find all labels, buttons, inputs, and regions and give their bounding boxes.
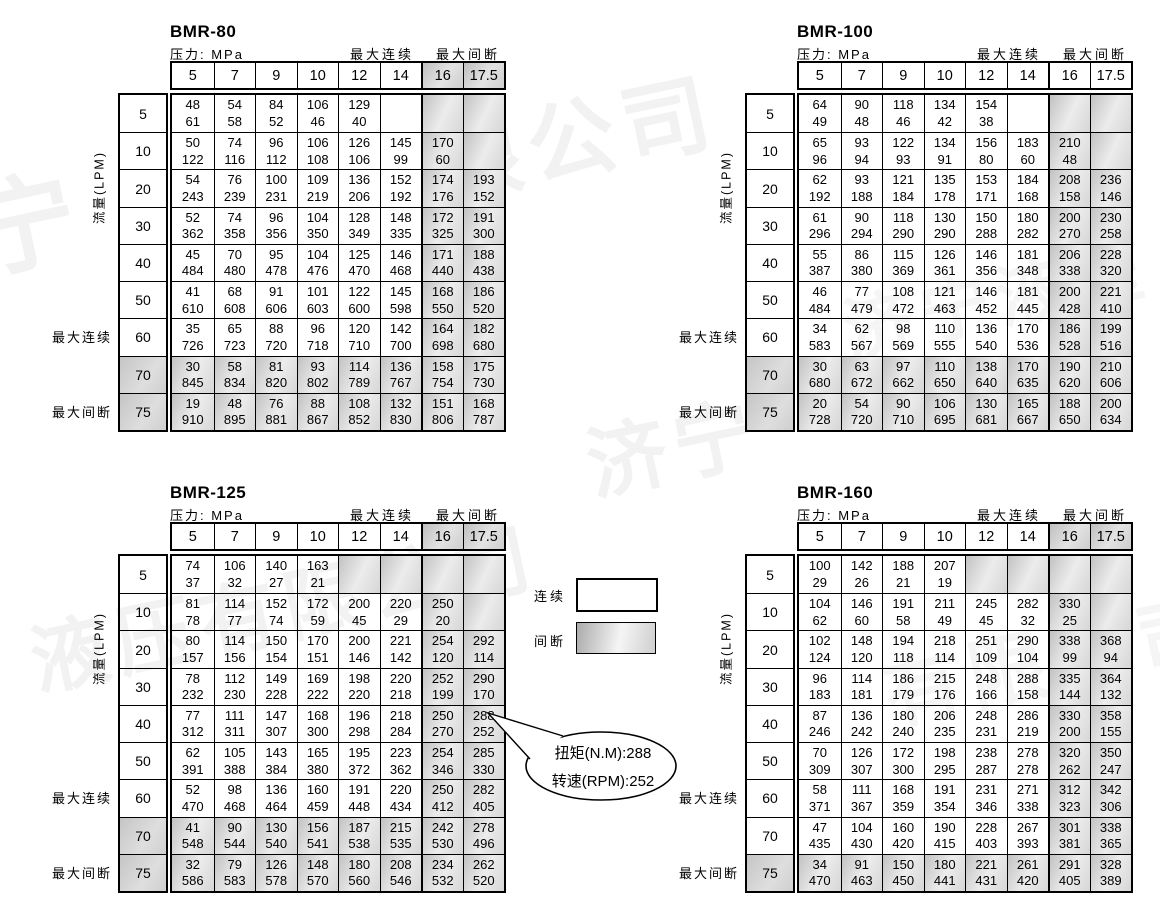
data-cell: 96718 [297,318,339,355]
torque-value: 70 [215,247,256,264]
data-cell: 160459 [297,779,339,816]
torque-value: 194 [883,633,924,650]
data-cell: 151806 [421,393,463,430]
data-grid: 6449904811846134421543865969394122931349… [797,93,1133,432]
data-cell: 112230 [214,668,256,705]
data-cell: 13442 [924,95,966,132]
data-cell: 20728 [799,393,841,430]
data-cell: 145598 [380,281,422,318]
flow-row-label: 40 [120,244,166,281]
flow-row-label: 50 [120,281,166,318]
speed-value: 206 [339,189,380,206]
side-row-label: 最大连续 [6,788,112,807]
speed-value: 262 [1050,762,1090,779]
speed-value: 306 [1091,799,1132,816]
data-cell: 10646 [297,95,339,132]
speed-value: 350 [298,226,339,243]
speed-value: 323 [1050,799,1090,816]
data-cell: 68608 [214,281,256,318]
pressure-header-cell: 16 [1048,524,1090,549]
data-cell: 10029 [799,556,841,593]
torque-value: 254 [423,745,463,762]
speed-value: 109 [966,650,1007,667]
speed-value: 120 [842,650,883,667]
torque-value: 153 [966,172,1007,189]
data-cell: 146468 [380,244,422,281]
torque-value: 215 [925,671,966,688]
data-cell: 206338 [1048,244,1090,281]
torque-value: 342 [1091,782,1132,799]
speed-value: 338 [1008,799,1049,816]
data-cell: 242530 [421,817,463,854]
torque-value: 54 [842,396,883,413]
data-cell: 150450 [882,854,924,891]
torque-value: 96 [799,671,841,688]
torque-value: 76 [215,172,256,189]
data-cell: 15680 [965,132,1007,169]
data-cell: 230258 [1090,207,1132,244]
data-cell: 108852 [338,393,380,430]
torque-value: 245 [966,596,1007,613]
speed-value: 598 [381,301,422,318]
data-cell: 169222 [297,668,339,705]
speed-value: 112 [256,152,297,169]
torque-value: 147 [256,708,297,725]
torque-value: 106 [215,558,256,575]
torque-value: 19 [172,396,214,413]
data-cell: 102124 [799,630,841,667]
torque-value: 58 [215,359,256,376]
torque-value: 282 [1008,596,1049,613]
data-cell: 215176 [924,668,966,705]
speed-value: 583 [215,873,256,890]
data-cell: 125470 [338,244,380,281]
pressure-header-cell: 7 [841,63,883,88]
speed-value: 667 [1008,412,1049,429]
speed-value: 49 [799,114,841,131]
flow-row-label: 30 [120,668,166,705]
data-cell: 62567 [841,318,883,355]
torque-value: 154 [966,97,1007,114]
data-cell: 76239 [214,169,256,206]
torque-value: 262 [464,857,505,874]
torque-value: 122 [883,135,924,152]
torque-value: 291 [1050,857,1090,874]
data-cell: 34583 [799,318,841,355]
data-cell: 65723 [214,318,256,355]
speed-value: 158 [1050,189,1090,206]
torque-value: 290 [1008,633,1049,650]
data-cell: 136464 [255,779,297,816]
torque-value: 198 [339,671,380,688]
pressure-header-cell: 10 [924,524,966,549]
speed-value: 789 [339,375,380,392]
data-cell: 208158 [1048,169,1090,206]
speed-value: 606 [256,301,297,318]
flow-row-label-column: 51020304050607075 [118,93,168,432]
torque-value: 145 [381,135,422,152]
pressure-header-cell: 16 [421,524,463,549]
speed-value: 834 [215,375,256,392]
data-cell: 96112 [255,132,297,169]
torque-value: 198 [925,745,966,762]
torque-value: 118 [883,210,924,227]
speed-value: 767 [381,375,422,392]
watermark-text: 宁 [0,130,96,301]
data-cell: 17259 [297,593,339,630]
side-row-label: 最大间断 [633,863,739,882]
speed-value: 532 [423,873,463,890]
torque-value: 81 [172,596,214,613]
speed-value: 516 [1091,338,1132,355]
speed-value: 311 [215,724,256,741]
data-cell: 132830 [380,393,422,430]
data-cell: 267393 [1007,817,1049,854]
torque-value: 267 [1008,820,1049,837]
torque-value: 364 [1091,671,1132,688]
torque-value: 120 [339,321,380,338]
pressure-header-cell: 5 [799,63,841,88]
torque-value: 168 [298,708,339,725]
torque-value: 368 [1091,633,1132,650]
data-cell: 18821 [882,556,924,593]
data-cell: 98569 [882,318,924,355]
pressure-header-cell: 12 [338,63,380,88]
torque-value: 165 [1008,396,1049,413]
torque-value: 84 [256,97,297,114]
speed-value: 403 [966,836,1007,853]
speed-value: 728 [799,412,841,429]
data-cell: 79583 [214,854,256,891]
speed-value: 680 [464,338,505,355]
torque-value: 248 [966,671,1007,688]
pressure-header-cell: 5 [172,524,214,549]
speed-value: 359 [883,799,924,816]
torque-value: 208 [381,857,422,874]
speed-value: 320 [1091,263,1132,280]
torque-value: 90 [842,210,883,227]
header-label-row: 压力: MPa 最大连续 最大间断 [170,44,502,59]
speed-value: 122 [172,152,214,169]
torque-value: 106 [298,135,339,152]
speed-value: 536 [1008,338,1049,355]
data-cell: 22029 [380,593,422,630]
torque-value: 301 [1050,820,1090,837]
torque-value: 218 [381,708,422,725]
torque-value: 136 [842,708,883,725]
speed-value: 146 [1091,189,1132,206]
flow-row-label: 30 [120,207,166,244]
torque-value: 126 [339,135,380,152]
data-cell: 186520 [463,281,505,318]
speed-value: 695 [925,412,966,429]
data-cell: 170151 [297,630,339,667]
torque-value: 146 [381,247,422,264]
speed-value: 546 [381,873,422,890]
speed-value: 802 [298,375,339,392]
torque-value: 65 [799,135,841,152]
flow-row-label: 40 [120,705,166,742]
torque-value: 320 [1050,745,1090,762]
speed-value: 710 [883,412,924,429]
torque-value: 183 [1008,135,1049,152]
data-cell: 96183 [799,668,841,705]
data-cell: 14599 [380,132,422,169]
speed-value: 166 [966,687,1007,704]
torque-value: 150 [883,857,924,874]
speed-value: 450 [883,873,924,890]
speed-value: 754 [423,375,463,392]
speed-value: 93 [883,152,924,169]
speed-value: 718 [298,338,339,355]
torque-value: 160 [298,782,339,799]
speed-value: 720 [256,338,297,355]
speed-value: 567 [842,338,883,355]
data-cell: 30845 [172,356,214,393]
speed-value: 192 [799,189,841,206]
torque-value: 108 [883,284,924,301]
pressure-header-cell: 14 [1007,524,1049,549]
speed-value: 681 [966,412,1007,429]
data-cell: 180441 [924,854,966,891]
torque-value: 187 [339,820,380,837]
torque-value: 182 [464,321,505,338]
speed-value: 106 [339,152,380,169]
speed-value: 48 [842,114,883,131]
pressure-header-row: 5791012141617.5 [797,522,1133,551]
data-cell: 78232 [172,668,214,705]
data-cell: 170635 [1007,356,1049,393]
data-cell: 136767 [380,356,422,393]
flow-axis-label: 流量(LPM) [716,579,735,719]
speed-value: 154 [256,650,297,667]
speed-value: 569 [883,338,924,355]
pressure-header-cell: 17.5 [463,63,505,88]
torque-value: 195 [339,745,380,762]
data-cell: 74116 [214,132,256,169]
data-cell [421,556,463,593]
speed-value: 434 [381,799,422,816]
speed-value: 528 [1050,338,1090,355]
torque-value: 114 [215,596,256,613]
data-cell: 118290 [882,207,924,244]
speed-value: 96 [799,152,841,169]
speed-value: 478 [256,263,297,280]
speed-value: 296 [799,226,841,243]
torque-value: 180 [1008,210,1049,227]
speed-value: 300 [883,762,924,779]
speed-value: 32 [215,575,256,592]
data-cell: 262520 [463,854,505,891]
speed-value: 428 [1050,301,1090,318]
speed-value: 290 [925,226,966,243]
side-row-label: 最大间断 [633,402,739,421]
data-cell: 88867 [297,393,339,430]
torque-value: 74 [215,135,256,152]
data-cell: 138640 [965,356,1007,393]
speed-value: 586 [172,873,214,890]
data-cell: 115369 [882,244,924,281]
pressure-header-cell: 5 [172,63,214,88]
callout-speed-text: 转速(RPM):252 [552,773,655,790]
speed-value: 650 [1050,412,1090,429]
speed-value: 25 [1050,613,1090,630]
speed-value: 108 [298,152,339,169]
data-cell: 106695 [924,393,966,430]
torque-value: 100 [256,172,297,189]
torque-value: 210 [1091,359,1132,376]
data-cell: 8452 [255,95,297,132]
data-cell: 150288 [965,207,1007,244]
torque-value: 148 [298,857,339,874]
torque-value: 96 [256,135,297,152]
speed-value: 48 [1050,152,1090,169]
header-label-row: 压力: MPa 最大连续 最大间断 [797,44,1129,59]
data-cell: 292114 [463,630,505,667]
data-cell: 136206 [338,169,380,206]
speed-value: 270 [423,724,463,741]
flow-row-label: 20 [747,630,793,667]
data-cell: 96356 [255,207,297,244]
speed-value: 435 [799,836,841,853]
speed-value: 156 [215,650,256,667]
speed-value: 583 [799,338,841,355]
torque-value: 62 [799,172,841,189]
data-cell: 271338 [1007,779,1049,816]
torque-value: 156 [298,820,339,837]
data-cell: 168300 [297,705,339,742]
speed-value: 294 [842,226,883,243]
data-cell: 191354 [924,779,966,816]
data-cell: 148120 [841,630,883,667]
torque-value: 95 [256,247,297,264]
data-cell [1048,95,1090,132]
pressure-header-cell: 17.5 [1090,524,1132,549]
speed-value: 412 [423,799,463,816]
speed-value: 335 [381,226,422,243]
data-cell [380,556,422,593]
speed-value: 124 [799,650,841,667]
data-cell [965,556,1007,593]
torque-value: 74 [215,210,256,227]
speed-value: 730 [464,375,505,392]
torque-value: 93 [298,359,339,376]
data-cell: 126578 [255,854,297,891]
table-title: BMR-100 [797,22,873,42]
torque-value: 278 [1008,745,1049,762]
torque-value: 98 [883,321,924,338]
torque-value: 65 [215,321,256,338]
speed-value: 459 [298,799,339,816]
flow-row-label: 5 [120,95,166,132]
speed-value: 606 [1091,375,1132,392]
speed-value: 550 [423,301,463,318]
torque-value: 47 [799,820,841,837]
pressure-header-cell: 9 [882,524,924,549]
speed-value: 830 [381,412,422,429]
speed-value: 282 [1008,226,1049,243]
speed-value: 354 [925,799,966,816]
data-cell: 172325 [421,207,463,244]
torque-value: 126 [925,247,966,264]
torque-value: 172 [423,210,463,227]
data-cell: 250412 [421,779,463,816]
speed-value: 910 [172,412,214,429]
speed-value: 698 [423,338,463,355]
torque-value: 61 [799,210,841,227]
speed-value: 362 [381,762,422,779]
speed-value: 463 [842,873,883,890]
torque-value: 146 [966,247,1007,264]
data-cell: 7437 [172,556,214,593]
speed-value: 307 [842,762,883,779]
side-row-label: 最大连续 [6,327,112,346]
torque-value: 30 [799,359,841,376]
torque-value: 164 [423,321,463,338]
speed-value: 420 [883,836,924,853]
data-cell: 58371 [799,779,841,816]
speed-value: 20 [423,613,463,630]
torque-value: 34 [799,321,841,338]
torque-value: 32 [172,857,214,874]
torque-value: 181 [1008,247,1049,264]
torque-value: 88 [298,396,339,413]
speed-value: 45 [966,613,1007,630]
data-cell: 168550 [421,281,463,318]
torque-value: 134 [925,97,966,114]
data-cell: 170536 [1007,318,1049,355]
data-cell: 191448 [338,779,380,816]
data-cell: 24545 [965,593,1007,630]
speed-value: 384 [256,762,297,779]
speed-value: 52 [256,114,297,131]
flow-row-label: 30 [747,207,793,244]
flow-row-label: 70 [747,356,793,393]
data-cell: 70480 [214,244,256,281]
data-cell: 41548 [172,817,214,854]
data-cell: 33025 [1048,593,1090,630]
data-cell: 182680 [463,318,505,355]
flow-row-label-column: 51020304050607075 [118,554,168,893]
speed-value: 548 [172,836,214,853]
data-cell: 136540 [965,318,1007,355]
data-cell: 221142 [380,630,422,667]
speed-value: 555 [925,338,966,355]
torque-value: 50 [172,135,214,152]
data-cell: 19158 [882,593,924,630]
table-title: BMR-160 [797,483,873,503]
data-cell: 190620 [1048,356,1090,393]
torque-value: 68 [215,284,256,301]
torque-value: 77 [172,708,214,725]
torque-value: 278 [464,820,505,837]
data-cell: 136242 [841,705,883,742]
torque-value: 126 [256,857,297,874]
callout-bubble: 扭矩(N.M):288 转速(RPM):252 [470,685,705,820]
torque-value: 104 [799,596,841,613]
torque-value: 170 [423,135,463,152]
data-cell: 153171 [965,169,1007,206]
data-cell: 142700 [380,318,422,355]
speed-value: 726 [172,338,214,355]
data-cell: 52470 [172,779,214,816]
flow-row-label: 10 [120,132,166,169]
torque-value: 134 [925,135,966,152]
speed-value: 168 [1008,189,1049,206]
speed-value: 362 [172,226,214,243]
torque-value: 188 [883,558,924,575]
speed-value: 338 [1050,263,1090,280]
